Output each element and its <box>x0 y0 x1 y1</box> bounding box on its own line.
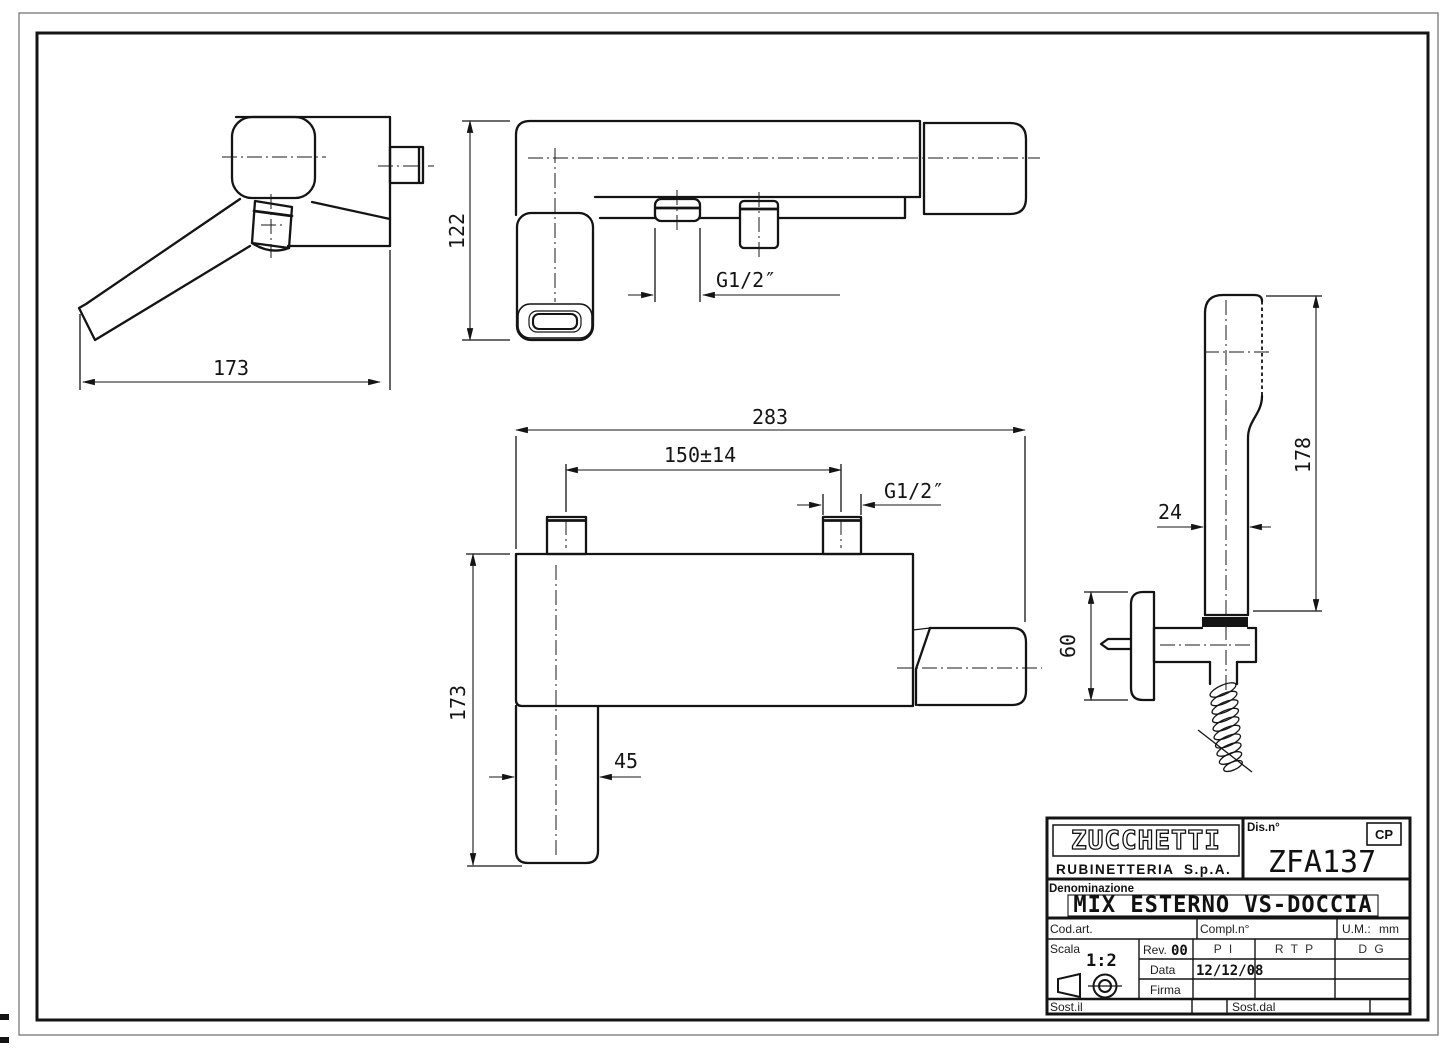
shower-dim-bracket: 60 <box>1056 592 1128 700</box>
logo-wordmark: ZUCCHETTI <box>1071 826 1221 856</box>
dim-shower-length: 178 <box>1291 437 1315 473</box>
view-top: 122 G1/2″ <box>445 121 1040 340</box>
scala-value: 1:2 <box>1086 951 1117 971</box>
top-outline <box>516 121 1026 340</box>
dim-top-thread: G1/2″ <box>716 268 776 292</box>
view-handshower: 178 24 60 <box>1056 295 1322 774</box>
drawing-no-value: ZFA137 <box>1268 845 1376 880</box>
shower-dim-length: 178 <box>1253 296 1322 611</box>
dim-front-spout-width: 45 <box>614 749 638 773</box>
dim-shower-bracket: 60 <box>1056 634 1080 658</box>
shower-outline <box>1101 295 1262 774</box>
front-dim-width: 283 <box>516 405 1025 622</box>
logo-subtext2: S.p.A. <box>1184 862 1231 877</box>
title-block: ZUCCHETTI RUBINETTERIA S.p.A. Dis.n° CP … <box>1047 818 1410 1014</box>
drawing-sheet: 173 122 <box>0 0 1445 1052</box>
top-dim-thread: G1/2″ <box>628 228 840 302</box>
cp-badge: CP <box>1375 827 1393 842</box>
view-side: 173 <box>79 117 434 390</box>
dim-front-thread: G1/2″ <box>884 479 944 503</box>
dim-front-height: 173 <box>446 685 470 721</box>
side-outline <box>79 117 423 340</box>
hose-coil <box>1208 680 1244 774</box>
dim-shower-width: 24 <box>1158 500 1182 524</box>
fold-mark <box>0 1014 9 1020</box>
col-pi: P I <box>1214 942 1234 956</box>
col-rtp: R T P <box>1275 942 1315 956</box>
fold-mark <box>0 1037 9 1043</box>
data-label: Data <box>1150 963 1176 977</box>
scala-label: Scala <box>1050 942 1080 956</box>
um-value: mm <box>1379 922 1399 936</box>
front-dim-thread: G1/2″ <box>797 479 944 515</box>
cod-art-label: Cod.art. <box>1050 922 1093 936</box>
top-centerlines <box>528 148 1040 302</box>
sost-dal-label: Sost.dal <box>1232 1000 1275 1014</box>
um-label: U.M.: <box>1342 922 1371 936</box>
dim-front-width: 283 <box>752 405 788 429</box>
zucchetti-logo: ZUCCHETTI RUBINETTERIA S.p.A. <box>1053 825 1239 877</box>
logo-subtext: RUBINETTERIA <box>1056 862 1175 877</box>
shower-dim-width: 24 <box>1157 500 1271 527</box>
compl-label: Compl.n° <box>1200 922 1250 936</box>
front-dim-interaxis: 150±14 <box>566 443 841 512</box>
rev-value: 00 <box>1171 943 1188 959</box>
sost-il-label: Sost.il <box>1050 1000 1083 1014</box>
col-dg: D G <box>1358 942 1385 956</box>
drawing-no-label: Dis.n° <box>1247 822 1280 834</box>
front-dim-spout-width: 45 <box>489 749 641 777</box>
dim-top-height: 122 <box>445 213 469 249</box>
hose-nut <box>1202 617 1248 627</box>
dim-front-interaxis: 150±14 <box>664 443 736 467</box>
first-angle-projection-icon <box>1058 974 1122 998</box>
denomination-value: MIX ESTERNO VS-DOCCIA <box>1073 893 1372 918</box>
data-value: 12/12/08 <box>1196 963 1263 979</box>
front-centerlines <box>556 520 1042 858</box>
technical-drawing: 173 122 <box>0 0 1445 1052</box>
firma-label: Firma <box>1150 983 1181 997</box>
rev-label: Rev. <box>1143 943 1167 957</box>
front-dim-height: 173 <box>446 554 522 866</box>
front-outline <box>516 517 1026 863</box>
view-front: 283 150±14 G1/2″ 173 45 <box>446 405 1042 866</box>
top-dim-height: 122 <box>445 121 510 340</box>
sheet-frame <box>0 13 1438 1043</box>
wall-pin <box>1101 639 1131 649</box>
dim-side-length: 173 <box>213 356 249 380</box>
